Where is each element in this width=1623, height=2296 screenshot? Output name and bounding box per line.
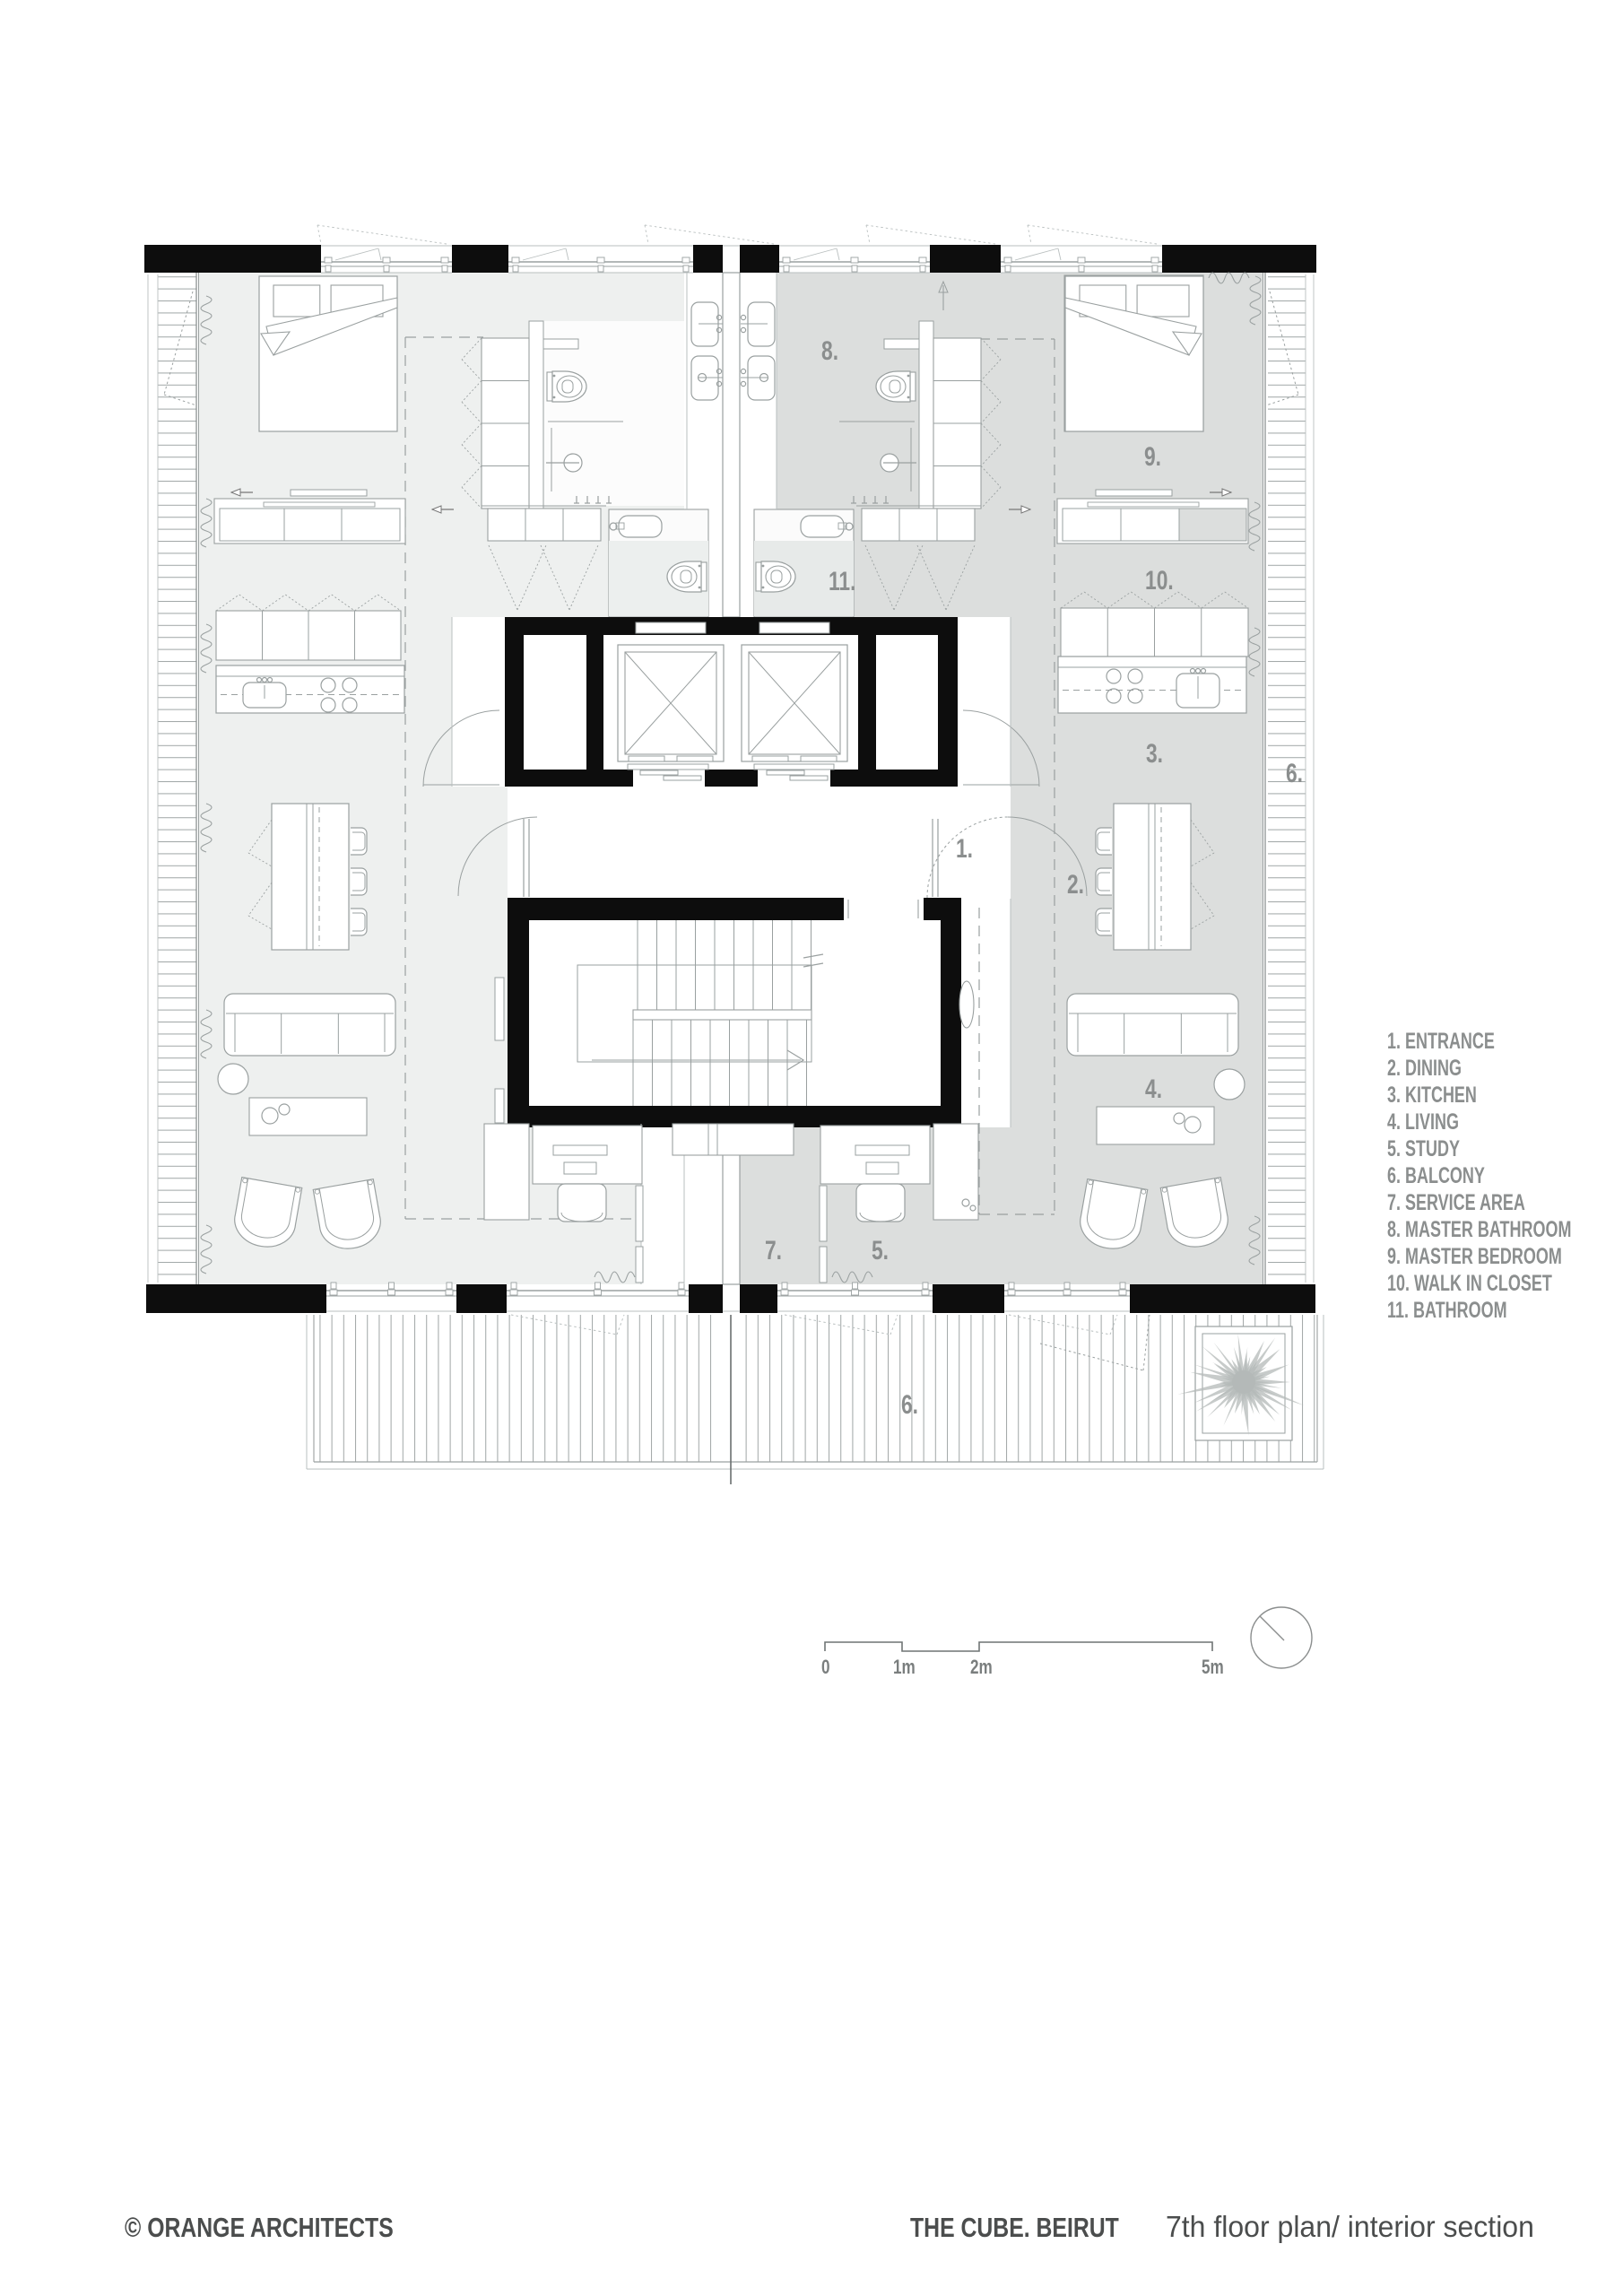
svg-text:5m: 5m: [1202, 1657, 1224, 1679]
svg-text:3.: 3.: [1146, 738, 1163, 769]
svg-text:0: 0: [821, 1657, 830, 1679]
svg-text:8.: 8.: [821, 335, 838, 366]
svg-text:2m: 2m: [970, 1657, 993, 1679]
svg-text:9.: 9.: [1144, 441, 1161, 472]
svg-text:7th floor plan/ interior secti: 7th floor plan/ interior section: [1166, 2211, 1534, 2244]
svg-text:2.: 2.: [1067, 869, 1084, 900]
svg-text:4.: 4.: [1145, 1074, 1162, 1104]
svg-text:11.: 11.: [829, 566, 855, 596]
svg-text:9. MASTER BEDROOM: 9. MASTER BEDROOM: [1387, 1243, 1562, 1269]
svg-text:THE CUBE. BEIRUT: THE CUBE. BEIRUT: [910, 2212, 1119, 2242]
svg-text:7.: 7.: [765, 1235, 782, 1265]
svg-text:5.: 5.: [872, 1235, 889, 1265]
svg-text:1m: 1m: [893, 1657, 916, 1679]
svg-text:1. ENTRANCE: 1. ENTRANCE: [1387, 1028, 1495, 1054]
svg-text:11. BATHROOM: 11. BATHROOM: [1387, 1297, 1507, 1323]
svg-text:8. MASTER BATHROOM: 8. MASTER BATHROOM: [1387, 1216, 1572, 1242]
svg-text:5. STUDY: 5. STUDY: [1387, 1135, 1460, 1161]
svg-text:1.: 1.: [956, 833, 973, 864]
svg-text:6.: 6.: [1286, 758, 1303, 788]
svg-text:7. SERVICE AREA: 7. SERVICE AREA: [1387, 1189, 1525, 1215]
svg-text:2. DINING: 2. DINING: [1387, 1055, 1462, 1081]
svg-text:3. KITCHEN: 3. KITCHEN: [1387, 1082, 1477, 1108]
svg-text:© ORANGE ARCHITECTS: © ORANGE ARCHITECTS: [125, 2212, 394, 2242]
svg-text:4. LIVING: 4. LIVING: [1387, 1109, 1459, 1135]
svg-text:10. WALK IN CLOSET: 10. WALK IN CLOSET: [1387, 1270, 1552, 1296]
svg-text:6. BALCONY: 6. BALCONY: [1387, 1162, 1485, 1188]
svg-text:6.: 6.: [901, 1389, 918, 1420]
svg-text:10.: 10.: [1145, 565, 1174, 596]
